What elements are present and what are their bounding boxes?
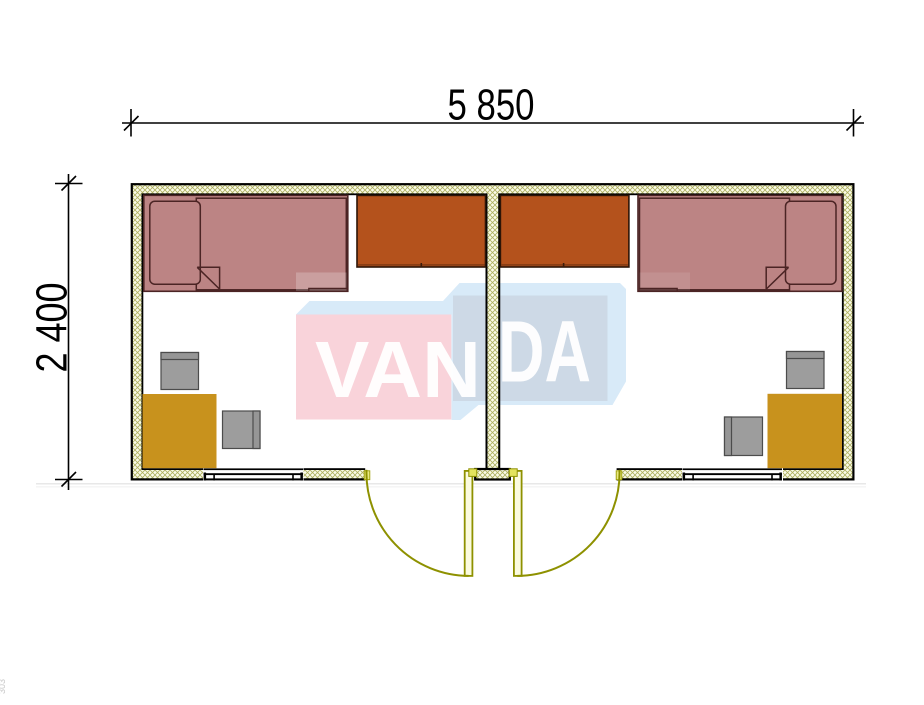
- svg-text:VAN: VAN: [315, 325, 481, 414]
- svg-text:2 400: 2 400: [28, 283, 77, 373]
- svg-text:5 850: 5 850: [448, 81, 535, 130]
- svg-text:303: 303: [0, 679, 7, 694]
- svg-text:DA: DA: [498, 304, 591, 401]
